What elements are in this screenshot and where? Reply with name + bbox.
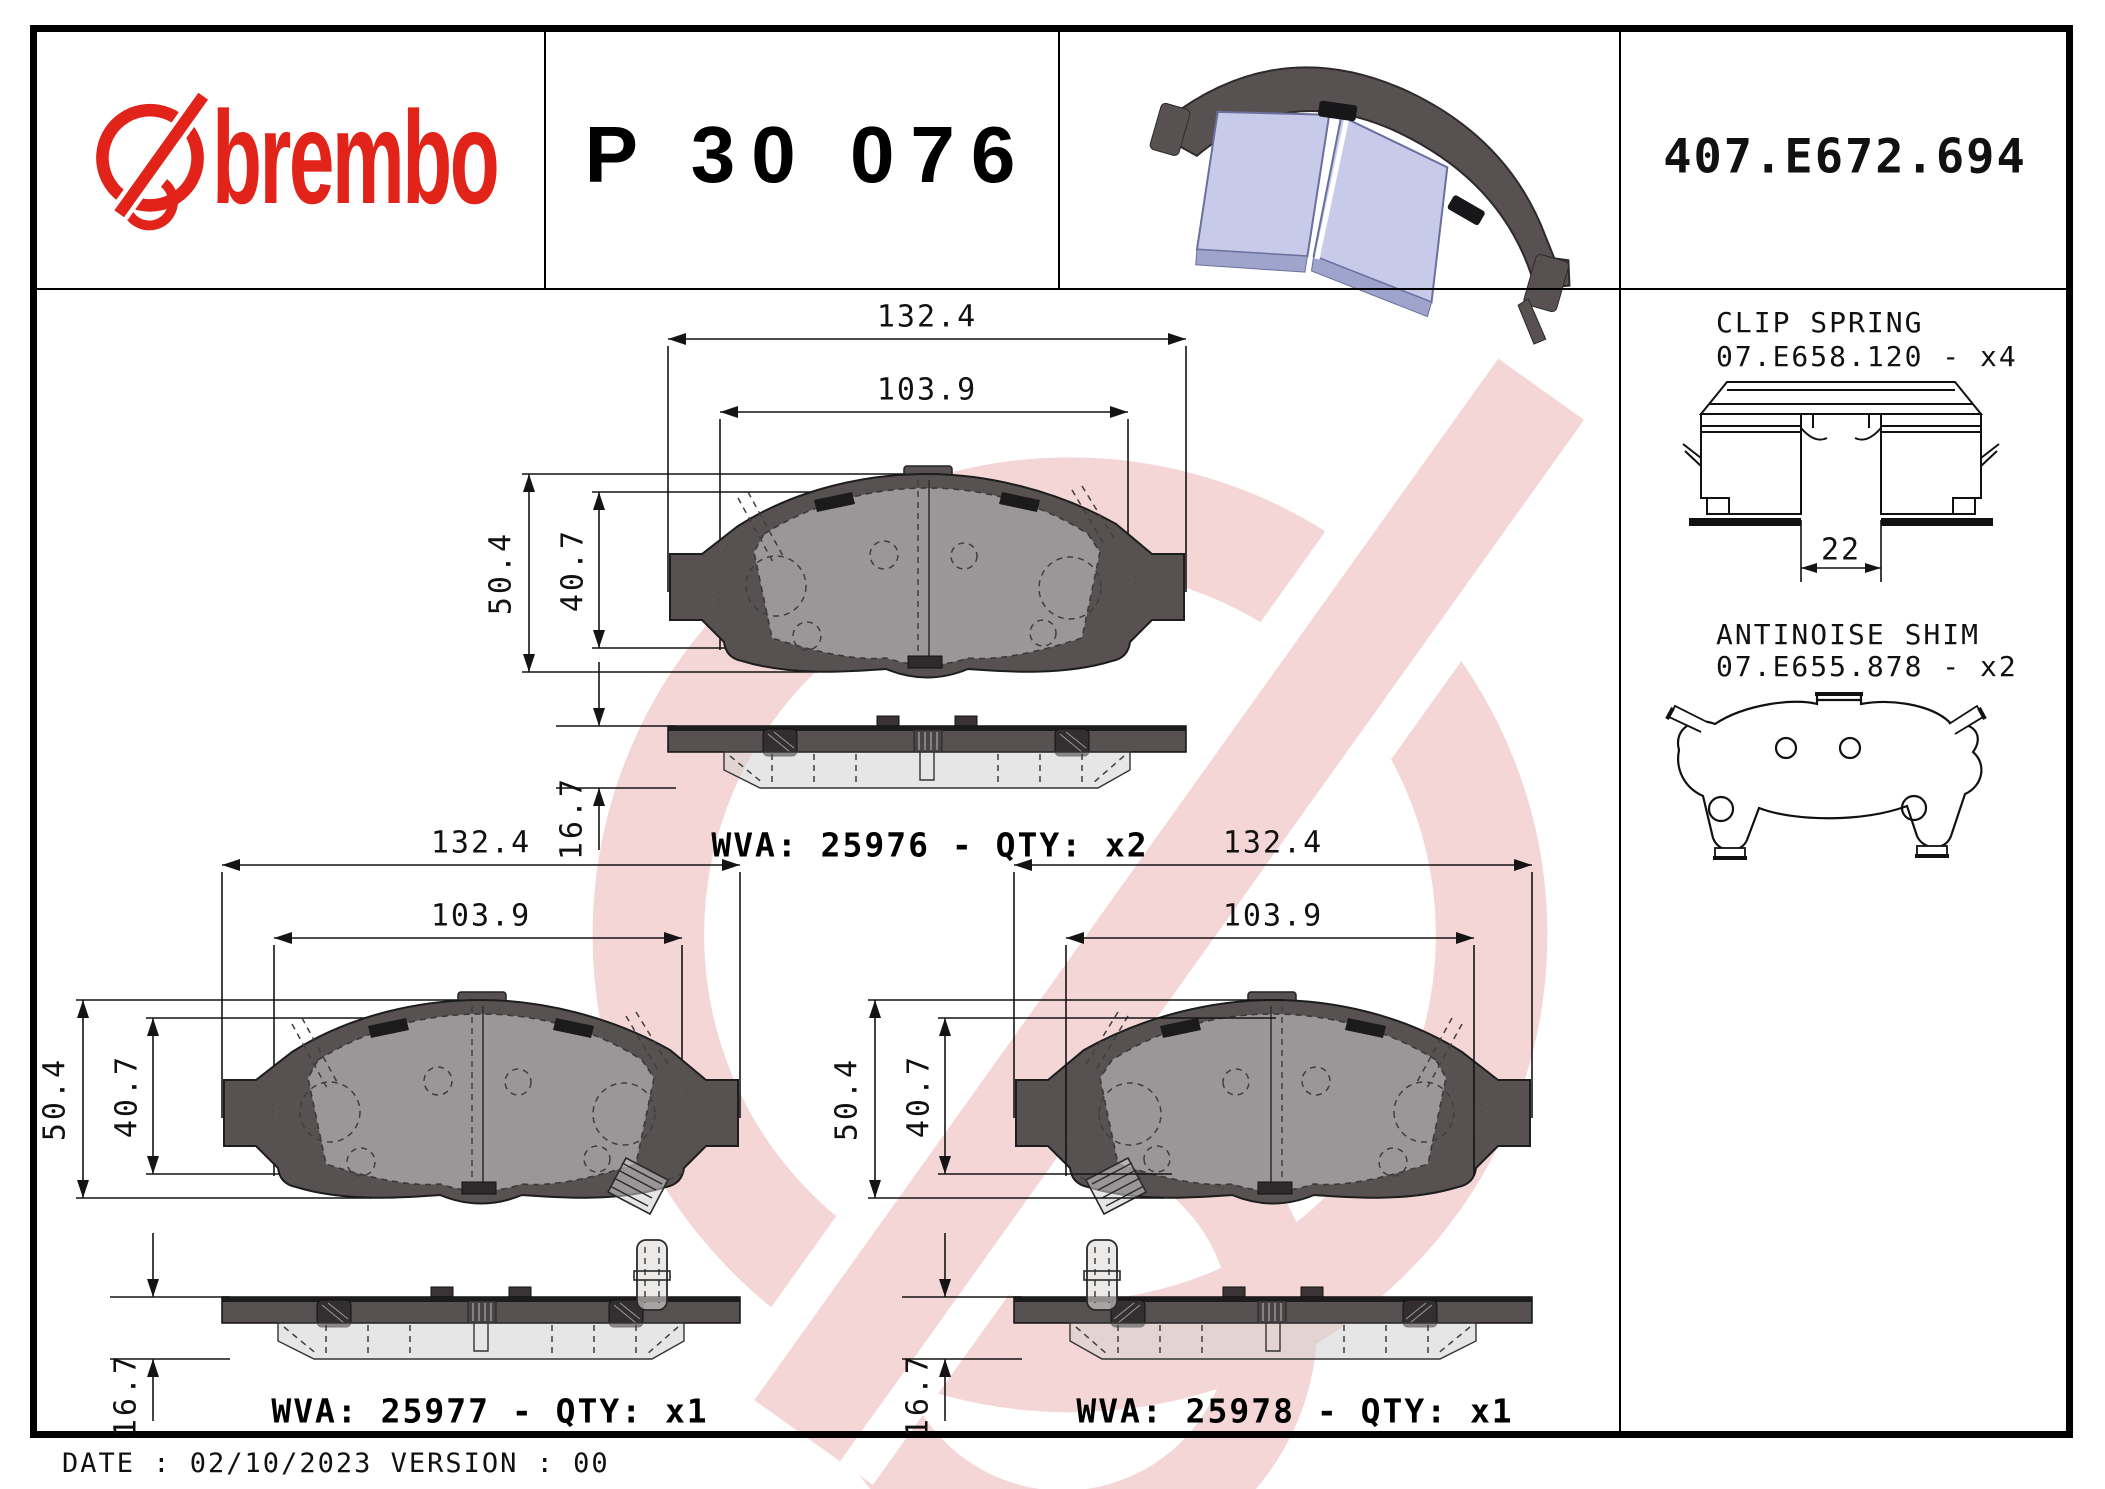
dim-width-outer-label: 132.4 [877, 300, 977, 335]
pad-drawing-group-25978 [1014, 992, 1532, 1359]
header-cell-divider-2 [1058, 32, 1060, 288]
dim-height-outer-label: 50.4 [38, 1057, 73, 1141]
dim-width-inner-label: 103.9 [431, 899, 531, 934]
clip-spring-title: CLIP SPRING [1716, 306, 1923, 339]
date-version-line: DATE : 02/10/2023 VERSION : 00 [62, 1448, 610, 1479]
pad-3d-image [1122, 24, 1610, 366]
header-divider-line [37, 288, 2066, 290]
wva-qty-label: WVA: 25976 - QTY: x2 [711, 826, 1148, 865]
header-cell-divider-1 [544, 32, 546, 288]
dim-height-outer-label: 50.4 [484, 531, 519, 615]
antinoise-shim-title: ANTINOISE SHIM [1716, 618, 1980, 651]
wva-qty-label: WVA: 25978 - QTY: x1 [1076, 1392, 1513, 1431]
dim-thickness-label: 16.7 [555, 776, 590, 860]
dim-width-inner-label: 103.9 [877, 373, 977, 408]
clip-spring-width-dim: 22 [1821, 533, 1861, 568]
dim-thickness-label: 16.7 [109, 1353, 144, 1437]
wva-qty-label: WVA: 25977 - QTY: x1 [271, 1392, 708, 1431]
dim-height-inner-label: 40.7 [902, 1054, 937, 1138]
wear-indicator-clip [1084, 1240, 1120, 1310]
wear-indicator-clip [634, 1240, 670, 1310]
antinoise-shim-drawing [1667, 694, 1985, 858]
pad-side-view [668, 716, 1186, 788]
brand-wordmark: brembo [212, 92, 497, 224]
brembo-datasheet-page: brembo P 30 076 407.E672.694 132.4 103.9… [0, 0, 2105, 1489]
catalog-code: 407.E672.694 [1663, 130, 2027, 185]
clip-spring-code: 07.E658.120 - x4 [1716, 340, 2018, 373]
dim-height-outer-label: 50.4 [830, 1057, 865, 1141]
dim-width-inner-label: 103.9 [1223, 899, 1323, 934]
brembo-logo-icon [102, 96, 203, 225]
dim-height-inner-label: 40.7 [556, 528, 591, 612]
dim-width-outer-label: 132.4 [1223, 826, 1323, 861]
part-number: P 30 076 [585, 109, 1032, 201]
dim-width-outer-label: 132.4 [431, 826, 531, 861]
dim-thickness-label: 16.7 [901, 1353, 936, 1437]
dim-height-inner-label: 40.7 [110, 1054, 145, 1138]
right-panel-divider [1619, 32, 1621, 1431]
antinoise-shim-code: 07.E655.878 - x2 [1716, 650, 2018, 683]
